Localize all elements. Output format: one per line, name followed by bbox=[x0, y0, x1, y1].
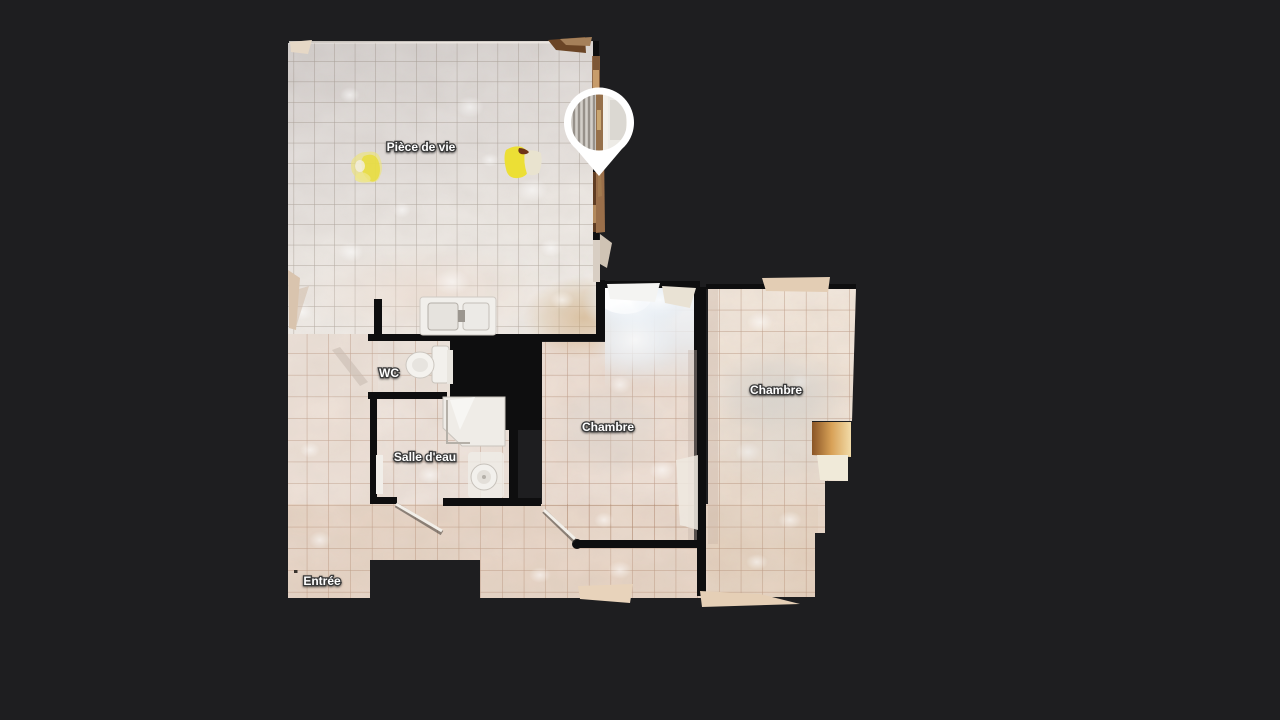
svg-text:Entrée: Entrée bbox=[303, 574, 341, 588]
svg-text:Pièce de vie: Pièce de vie bbox=[387, 140, 456, 154]
svg-text:Chambre: Chambre bbox=[582, 420, 634, 434]
svg-text:Salle d'eau: Salle d'eau bbox=[394, 450, 456, 464]
svg-text:WC: WC bbox=[379, 366, 399, 380]
svg-text:Chambre: Chambre bbox=[750, 383, 802, 397]
